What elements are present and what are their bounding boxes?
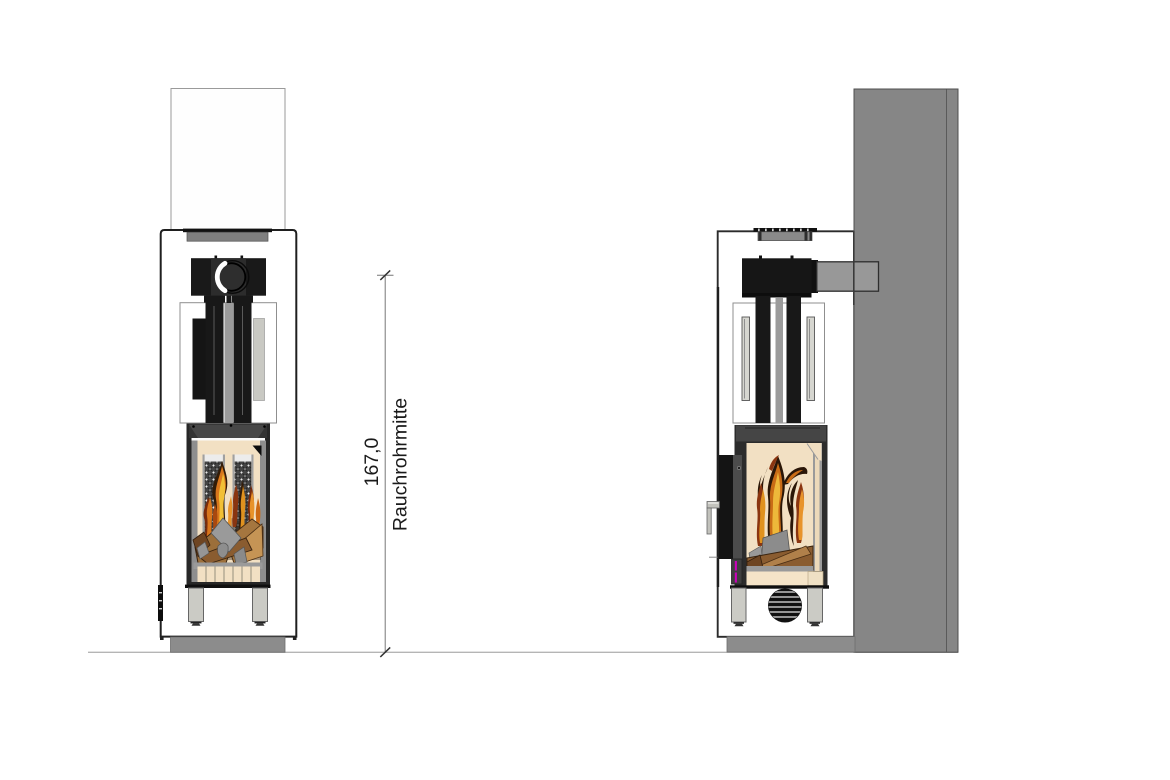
- svg-text:Rauchrohrmitte: Rauchrohrmitte: [390, 398, 412, 531]
- svg-text:167,0: 167,0: [361, 437, 383, 486]
